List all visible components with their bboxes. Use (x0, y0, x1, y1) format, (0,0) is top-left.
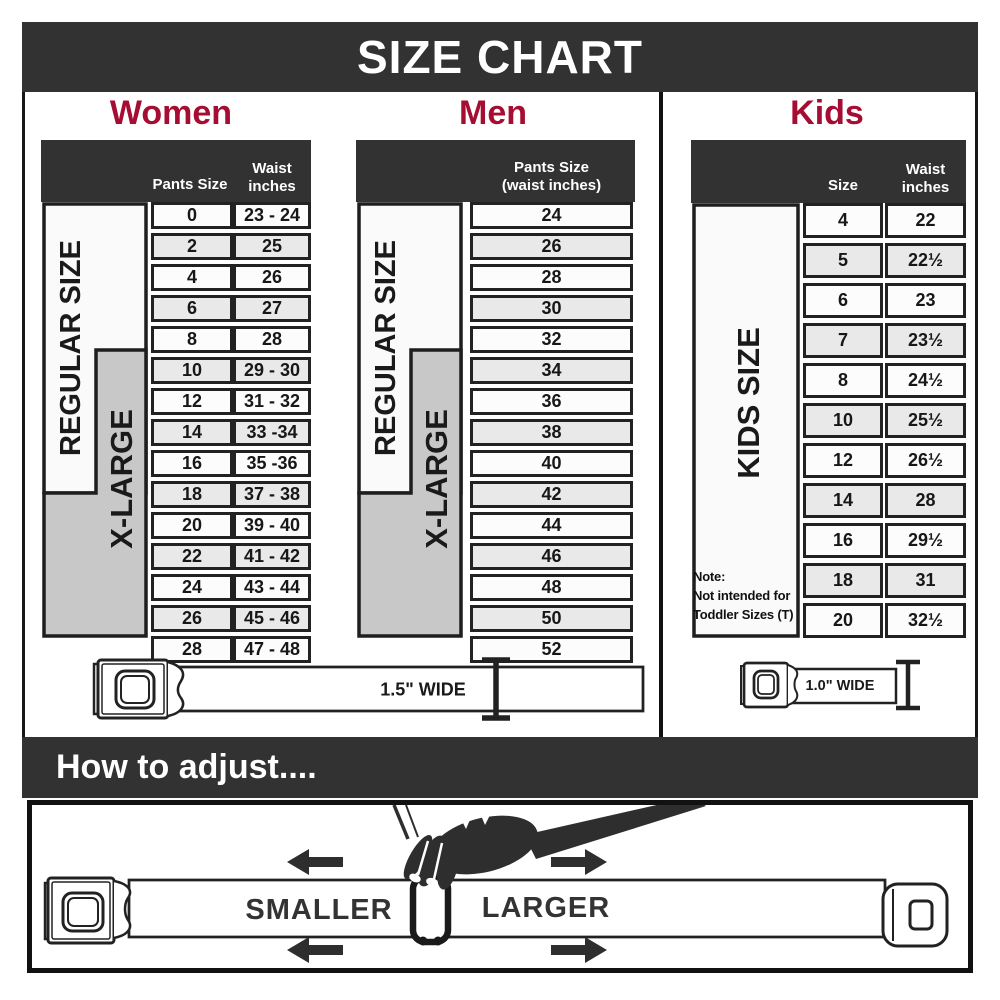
size-cell: 48 (470, 574, 633, 601)
size-cell: 24 (151, 574, 233, 601)
waist-cell: 23 - 24 (233, 202, 311, 229)
size-cell: 20 (151, 512, 233, 539)
size-cell: 44 (470, 512, 633, 539)
waist-cell: 22 (885, 203, 966, 238)
women-section-heading: Women (61, 94, 281, 133)
size-cell: 24 (470, 202, 633, 229)
kids-size-table: Size Waist inches KIDS SIZE Note: Not in… (691, 140, 966, 638)
women-waist-column: 23 - 24 25 26 27 28 29 - 30 31 - 32 33 -… (233, 202, 311, 640)
men-xlarge-label: X-LARGE (419, 409, 454, 549)
belt-buckle-icon (94, 660, 183, 718)
women-size-table: Pants Size Waist inches REGULAR SIZE X-L… (41, 140, 311, 640)
kids-belt-width-label: 1.0" WIDE (806, 678, 875, 694)
size-cell: 26 (470, 233, 633, 260)
size-cell: 22 (151, 543, 233, 570)
women-pants-size-column: 0 2 4 6 8 10 12 14 16 18 20 22 24 26 28 (151, 202, 233, 640)
men-section-heading: Men (383, 94, 603, 133)
waist-cell: 45 - 46 (233, 605, 311, 632)
belt-tip-icon (883, 884, 947, 946)
size-cell: 7 (803, 323, 883, 358)
waist-cell: 24½ (885, 363, 966, 398)
adult-belt-width-label: 1.5" WIDE (380, 679, 466, 699)
size-cell: 36 (470, 388, 633, 415)
kids-size-column: 4 5 6 7 8 10 12 14 16 18 20 (803, 203, 883, 638)
size-tables-area: Women Men Kids Pants Size Waist inches R… (22, 92, 978, 737)
waist-cell: 41 - 42 (233, 543, 311, 570)
size-cell: 12 (803, 443, 883, 478)
kids-waist-column: 22 22½ 23 23½ 24½ 25½ 26½ 28 29½ 31 32½ (885, 203, 966, 638)
waist-cell: 25½ (885, 403, 966, 438)
waist-cell: 39 - 40 (233, 512, 311, 539)
hand-icon (394, 805, 706, 892)
size-cell: 16 (803, 523, 883, 558)
kids-note: Note: Not intended for Toddler Sizes (T) (693, 568, 801, 625)
men-regular-size-label: REGULAR SIZE (370, 240, 402, 456)
arrow-left-icon (287, 937, 343, 963)
size-cell: 30 (470, 295, 633, 322)
women-col-header-waist: Waist inches (233, 160, 311, 198)
width-measure-icon (896, 662, 920, 708)
how-to-adjust-heading: How to adjust.... (22, 748, 317, 787)
size-cell: 10 (803, 403, 883, 438)
larger-label: LARGER (482, 892, 610, 924)
size-cell: 10 (151, 357, 233, 384)
waist-cell: 28 (233, 326, 311, 353)
men-table-header: Pants Size (waist inches) (356, 140, 635, 202)
waist-cell: 31 (885, 563, 966, 598)
men-size-category-blocks: REGULAR SIZE X-LARGE (356, 202, 466, 640)
kids-col-header-size: Size (803, 177, 883, 196)
adjust-illustration-box: SMALLER LARGER (27, 800, 973, 973)
waist-cell: 43 - 44 (233, 574, 311, 601)
size-cell: 4 (803, 203, 883, 238)
size-cell: 46 (470, 543, 633, 570)
size-cell: 16 (151, 450, 233, 477)
men-size-table: Pants Size (waist inches) REGULAR SIZE X… (356, 140, 635, 640)
size-cell: 32 (470, 326, 633, 353)
size-cell: 18 (803, 563, 883, 598)
size-cell: 42 (470, 481, 633, 508)
kids-size-label: KIDS SIZE (731, 327, 766, 479)
size-cell: 2 (151, 233, 233, 260)
adult-belt-illustration: 1.5" WIDE (41, 650, 651, 738)
belt-buckle-icon (45, 878, 130, 943)
page-title: SIZE CHART (357, 30, 643, 84)
women-xlarge-label: X-LARGE (104, 409, 139, 549)
arrow-right-icon (551, 849, 607, 875)
size-cell: 0 (151, 202, 233, 229)
arrow-right-icon (551, 937, 607, 963)
waist-cell: 29½ (885, 523, 966, 558)
size-cell: 8 (151, 326, 233, 353)
waist-cell: 27 (233, 295, 311, 322)
women-size-category-blocks: REGULAR SIZE X-LARGE (41, 202, 151, 640)
how-to-adjust-band: How to adjust.... (22, 737, 978, 798)
waist-cell: 35 -36 (233, 450, 311, 477)
waist-cell: 26 (233, 264, 311, 291)
waist-cell: 26½ (885, 443, 966, 478)
waist-cell: 25 (233, 233, 311, 260)
waist-cell: 29 - 30 (233, 357, 311, 384)
waist-cell: 32½ (885, 603, 966, 638)
size-cell: 6 (151, 295, 233, 322)
waist-cell: 37 - 38 (233, 481, 311, 508)
belt-buckle-icon (741, 663, 797, 707)
size-cell: 6 (803, 283, 883, 318)
women-regular-size-label: REGULAR SIZE (55, 240, 87, 456)
waist-cell: 23 (885, 283, 966, 318)
size-cell: 5 (803, 243, 883, 278)
size-cell: 14 (151, 419, 233, 446)
kids-section-heading: Kids (717, 94, 937, 133)
waist-cell: 33 -34 (233, 419, 311, 446)
waist-cell: 23½ (885, 323, 966, 358)
size-cell: 40 (470, 450, 633, 477)
kids-belt-illustration: 1.0" WIDE (713, 652, 943, 714)
size-chart-banner: SIZE CHART (22, 22, 978, 92)
size-cell: 14 (803, 483, 883, 518)
size-cell: 28 (470, 264, 633, 291)
section-divider (659, 92, 663, 737)
kids-table-header: Size Waist inches (691, 140, 966, 203)
size-cell: 26 (151, 605, 233, 632)
size-cell: 18 (151, 481, 233, 508)
waist-cell: 28 (885, 483, 966, 518)
size-cell: 8 (803, 363, 883, 398)
size-cell: 38 (470, 419, 633, 446)
men-pants-size-column: 24 26 28 30 32 34 36 38 40 42 44 46 48 5… (470, 202, 633, 640)
size-cell: 12 (151, 388, 233, 415)
kids-col-header-waist: Waist inches (885, 161, 966, 199)
size-cell: 50 (470, 605, 633, 632)
men-col-header-pants-size: Pants Size (waist inches) (470, 159, 633, 197)
size-chart-page: SIZE CHART Women Men Kids Pants Size Wai… (0, 0, 1000, 1000)
smaller-label: SMALLER (245, 894, 392, 926)
women-col-header-pants-size: Pants Size (147, 176, 233, 195)
size-cell: 20 (803, 603, 883, 638)
women-table-header: Pants Size Waist inches (41, 140, 311, 202)
size-cell: 4 (151, 264, 233, 291)
arrow-left-icon (287, 849, 343, 875)
adjust-belt-illustration: SMALLER LARGER (32, 805, 968, 968)
size-cell: 34 (470, 357, 633, 384)
waist-cell: 31 - 32 (233, 388, 311, 415)
waist-cell: 22½ (885, 243, 966, 278)
